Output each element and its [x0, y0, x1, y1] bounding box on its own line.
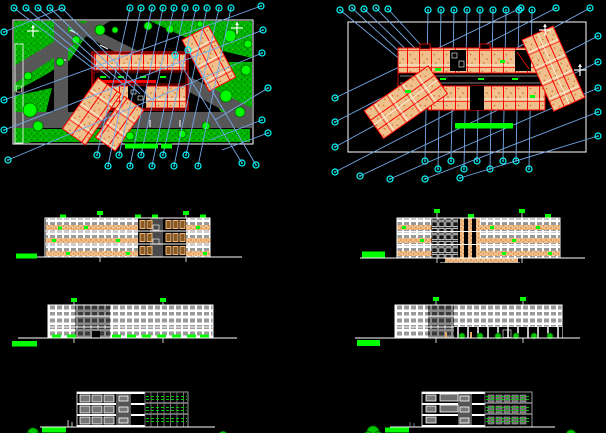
tree-icon — [24, 428, 41, 433]
plan-north-arrow-icon — [574, 64, 586, 76]
retaining-wall — [445, 258, 518, 263]
tree-icon — [364, 426, 383, 433]
section-right-block — [145, 392, 188, 427]
cad-drawing-canvas[interactable] — [0, 0, 606, 433]
axis-flag-markers — [433, 297, 526, 301]
elevation-scale-bar — [357, 340, 380, 346]
section-scale-bar — [42, 428, 66, 433]
floor-plan — [332, 5, 601, 182]
section-left — [40, 392, 215, 433]
entry-door — [92, 331, 100, 338]
section-rooms — [80, 395, 128, 424]
site-scale-bar — [125, 144, 172, 149]
axis-flag-markers — [60, 211, 206, 218]
axis-flag-markers — [71, 298, 166, 302]
section-right-block — [485, 392, 532, 427]
person-figure — [445, 332, 447, 338]
section-scale-bar — [385, 428, 409, 433]
floor-plan-building — [364, 26, 585, 138]
axis-flag-markers — [434, 209, 551, 218]
elevation-scale-bar — [362, 252, 385, 258]
elevation-scale-bar — [16, 254, 37, 259]
site-plan — [1, 3, 271, 169]
section-right — [385, 392, 555, 433]
cad-sheet — [0, 0, 606, 433]
elevation-scale-bar — [12, 341, 37, 347]
section-rooms — [426, 394, 469, 423]
floor-scale-bar — [455, 123, 513, 129]
person-figure — [470, 332, 472, 338]
